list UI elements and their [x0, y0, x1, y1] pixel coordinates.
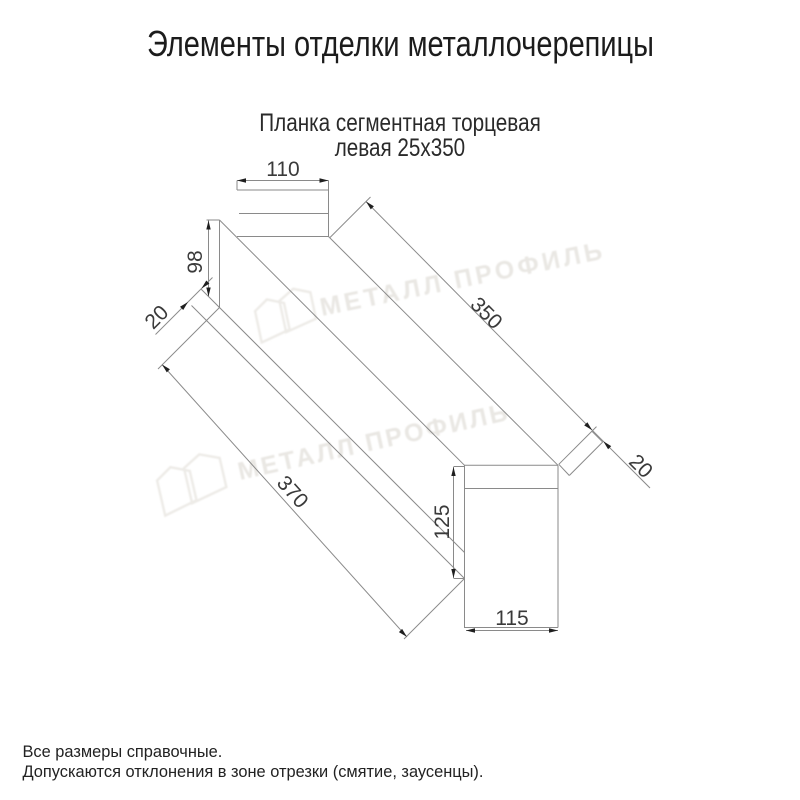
svg-text:98: 98	[184, 250, 207, 273]
svg-text:115: 115	[495, 607, 528, 630]
svg-text:20: 20	[141, 301, 174, 334]
svg-text:110: 110	[266, 158, 299, 181]
svg-text:350: 350	[466, 293, 507, 334]
svg-text:МЕТАЛЛ ПРОФИЛЬ: МЕТАЛЛ ПРОФИЛЬ	[318, 237, 608, 322]
svg-text:МЕТАЛЛ ПРОФИЛЬ: МЕТАЛЛ ПРОФИЛЬ	[235, 398, 512, 486]
svg-text:20: 20	[624, 450, 657, 483]
svg-text:125: 125	[431, 504, 454, 539]
svg-text:370: 370	[272, 471, 313, 512]
